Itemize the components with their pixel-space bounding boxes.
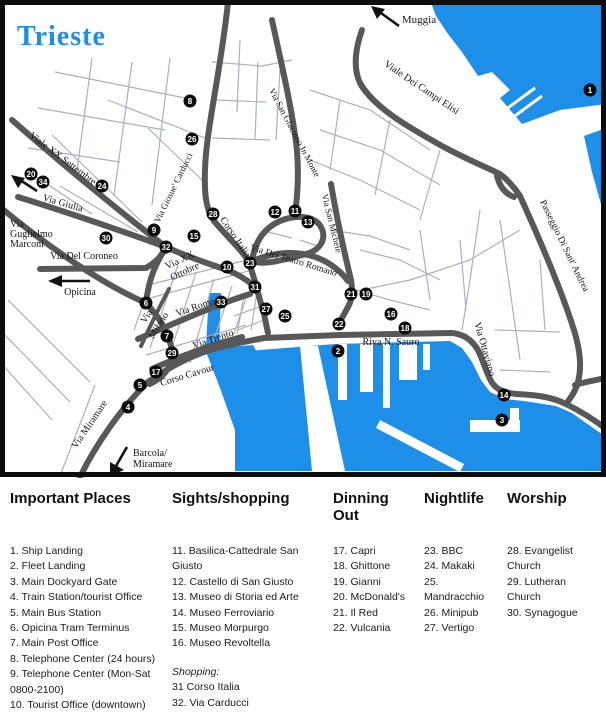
svg-text:14: 14 bbox=[500, 391, 509, 400]
street-label: Muggia bbox=[402, 14, 436, 26]
svg-text:19: 19 bbox=[362, 290, 371, 299]
svg-text:12: 12 bbox=[271, 208, 280, 217]
svg-text:26: 26 bbox=[188, 135, 197, 144]
svg-text:23: 23 bbox=[246, 259, 255, 268]
legend-column-sights-shopping: Sights/shopping 11. Basilica-Cattedrale … bbox=[172, 478, 326, 712]
legend-column-items: 17. Capri18. Ghittone19. Gianni20. McDon… bbox=[333, 544, 417, 636]
street-label: Marconi bbox=[10, 239, 44, 250]
street-label: Corso Italia bbox=[217, 215, 253, 261]
map-marker-28: 28 bbox=[207, 208, 220, 221]
map-marker-10: 10 bbox=[221, 261, 234, 274]
legend-item: 29. Lutheran Church bbox=[507, 575, 591, 606]
legend-item: 22. Vulcania bbox=[333, 621, 417, 636]
legend-item: 28. Evangelist Church bbox=[507, 544, 591, 575]
trieste-map: MuggiaViale XX SettembreVia GiuliaViaGug… bbox=[0, 0, 606, 478]
map-marker-4: 4 bbox=[122, 401, 135, 414]
street-label: Via Del Coroneo bbox=[50, 251, 118, 262]
legend-column-items: 28. Evangelist Church29. Lutheran Church… bbox=[507, 544, 591, 621]
legend-column-dining-out: Dinning Out 17. Capri18. Ghittone19. Gia… bbox=[333, 478, 417, 712]
legend-item: 10. Tourist Office (downtown) bbox=[10, 698, 174, 712]
svg-text:30: 30 bbox=[102, 234, 111, 243]
map-marker-31: 31 bbox=[249, 281, 262, 294]
svg-text:3: 3 bbox=[500, 416, 505, 425]
map-marker-3: 3 bbox=[496, 414, 509, 427]
map-marker-20: 20 bbox=[25, 168, 38, 181]
legend-column-items: 1. Ship Landing2. Fleet Landing3. Main D… bbox=[10, 544, 174, 712]
muggia-arrow bbox=[381, 13, 399, 26]
legend-item: 27. Vertigo bbox=[424, 621, 498, 636]
legend-column-items: 23. BBC24. Makaki25. Mandracchio26. Mini… bbox=[424, 544, 498, 636]
map-marker-8: 8 bbox=[184, 95, 197, 108]
legend-item: 2. Fleet Landing bbox=[10, 559, 174, 574]
svg-text:10: 10 bbox=[223, 263, 232, 272]
street-label: Via Miramare bbox=[70, 398, 111, 451]
legend-column-worship: Worship 28. Evangelist Church29. Luthera… bbox=[507, 478, 591, 712]
svg-text:9: 9 bbox=[152, 226, 157, 235]
map-marker-1: 1 bbox=[584, 84, 597, 97]
street-label: Viale Dei Campi Elisi bbox=[382, 59, 461, 117]
legend-item: 16. Museo Revoltella bbox=[172, 636, 326, 651]
legend: Important Places 1. Ship Landing2. Fleet… bbox=[0, 478, 606, 712]
svg-text:1: 1 bbox=[588, 86, 593, 95]
legend-column-title: Sights/shopping bbox=[172, 490, 326, 507]
svg-text:21: 21 bbox=[347, 290, 356, 299]
map-marker-27: 27 bbox=[260, 303, 273, 316]
legend-column-title: Nightlife bbox=[424, 490, 498, 507]
svg-text:28: 28 bbox=[209, 210, 218, 219]
map-canvas: MuggiaViale XX SettembreVia GiuliaViaGug… bbox=[0, 0, 606, 478]
street-label: Riva N. Sauro bbox=[363, 337, 420, 348]
svg-text:7: 7 bbox=[165, 332, 170, 341]
trieste-map-page: MuggiaViale XX SettembreVia GiuliaViaGug… bbox=[0, 0, 606, 712]
svg-text:15: 15 bbox=[190, 232, 199, 241]
map-marker-23: 23 bbox=[244, 257, 257, 270]
svg-text:17: 17 bbox=[152, 368, 161, 377]
map-marker-7: 7 bbox=[161, 330, 174, 343]
legend-item: 24. Makaki bbox=[424, 559, 498, 574]
svg-text:11: 11 bbox=[291, 207, 300, 216]
map-marker-24: 24 bbox=[96, 180, 109, 193]
legend-item: 21. Il Red bbox=[333, 606, 417, 621]
street-label: Via San Giacomo In Monte bbox=[267, 87, 322, 179]
legend-item: 18. Ghittone bbox=[333, 559, 417, 574]
map-marker-16: 16 bbox=[385, 308, 398, 321]
svg-text:6: 6 bbox=[144, 299, 149, 308]
map-title: Trieste bbox=[17, 21, 106, 52]
svg-text:24: 24 bbox=[98, 182, 107, 191]
svg-text:22: 22 bbox=[335, 320, 344, 329]
street-label: Barcola/ bbox=[133, 448, 167, 459]
legend-item: 31 Corso Italia bbox=[172, 680, 326, 695]
map-marker-9: 9 bbox=[148, 224, 161, 237]
map-marker-34: 34 bbox=[37, 176, 50, 189]
legend-item: 26. Minipub bbox=[424, 606, 498, 621]
svg-text:27: 27 bbox=[262, 305, 271, 314]
map-marker-29: 29 bbox=[166, 347, 179, 360]
svg-text:4: 4 bbox=[126, 403, 131, 412]
map-marker-18: 18 bbox=[399, 322, 412, 335]
svg-text:13: 13 bbox=[304, 218, 313, 227]
map-marker-21: 21 bbox=[345, 288, 358, 301]
legend-item: 5. Main Bus Station bbox=[10, 606, 174, 621]
street-label: Via Giosue' Carducci bbox=[152, 151, 195, 225]
legend-item: 17. Capri bbox=[333, 544, 417, 559]
map-marker-30: 30 bbox=[100, 232, 113, 245]
svg-text:20: 20 bbox=[27, 170, 36, 179]
map-marker-13: 13 bbox=[302, 216, 315, 229]
legend-item: 7. Main Post Office bbox=[10, 636, 174, 651]
map-marker-2: 2 bbox=[332, 345, 345, 358]
legend-item: 20. McDonald's bbox=[333, 590, 417, 605]
legend-item: 3. Main Dockyard Gate bbox=[10, 575, 174, 590]
legend-item: 25. Mandracchio bbox=[424, 575, 498, 606]
legend-item: 23. BBC bbox=[424, 544, 498, 559]
map-marker-6: 6 bbox=[140, 297, 153, 310]
legend-item: Shopping: bbox=[172, 665, 326, 680]
legend-item: 32. Via Carducci bbox=[172, 696, 326, 711]
map-marker-26: 26 bbox=[186, 133, 199, 146]
svg-text:18: 18 bbox=[401, 324, 410, 333]
map-marker-19: 19 bbox=[360, 288, 373, 301]
legend-column-nightlife: Nightlife 23. BBC24. Makaki25. Mandracch… bbox=[424, 478, 498, 712]
svg-text:31: 31 bbox=[251, 283, 260, 292]
svg-text:29: 29 bbox=[168, 349, 177, 358]
map-marker-17: 17 bbox=[150, 366, 163, 379]
svg-text:5: 5 bbox=[138, 381, 143, 390]
map-marker-33: 33 bbox=[215, 296, 228, 309]
legend-item: 14. Museo Ferroviario bbox=[172, 606, 326, 621]
svg-text:34: 34 bbox=[39, 178, 48, 187]
map-marker-12: 12 bbox=[269, 206, 282, 219]
map-marker-25: 25 bbox=[279, 310, 292, 323]
legend-item: 9. Telephone Center (Mon-Sat 0800-2100) bbox=[10, 667, 174, 698]
legend-item: 15. Museo Morpurgo bbox=[172, 621, 326, 636]
legend-column-important-places: Important Places 1. Ship Landing2. Fleet… bbox=[10, 478, 174, 712]
svg-text:16: 16 bbox=[387, 310, 396, 319]
legend-item: 12. Castello di San Giusto bbox=[172, 575, 326, 590]
legend-column-title: Important Places bbox=[10, 490, 174, 507]
barcola-arrow bbox=[116, 447, 127, 466]
svg-text:33: 33 bbox=[217, 298, 226, 307]
map-marker-22: 22 bbox=[333, 318, 346, 331]
northwest-arrow bbox=[20, 180, 37, 191]
svg-text:25: 25 bbox=[281, 312, 290, 321]
legend-item: 4. Train Station/tourist Office bbox=[10, 590, 174, 605]
map-marker-15: 15 bbox=[188, 230, 201, 243]
street-label: Opicina bbox=[64, 287, 96, 298]
legend-item: 19. Gianni bbox=[333, 575, 417, 590]
legend-item: 30. Synagogue bbox=[507, 606, 591, 621]
street-label: Miramare bbox=[133, 459, 173, 470]
map-marker-11: 11 bbox=[289, 205, 302, 218]
legend-item: 6. Opicina Tram Terminus bbox=[10, 621, 174, 636]
map-marker-5: 5 bbox=[134, 379, 147, 392]
legend-column-title: Worship bbox=[507, 490, 591, 507]
svg-text:8: 8 bbox=[188, 97, 193, 106]
svg-text:2: 2 bbox=[336, 347, 341, 356]
map-marker-14: 14 bbox=[498, 389, 511, 402]
legend-column-title: Dinning Out bbox=[333, 490, 417, 524]
legend-item: 13. Museo di Storia ed Arte bbox=[172, 590, 326, 605]
svg-text:32: 32 bbox=[162, 243, 171, 252]
legend-column-items: 11. Basilica-Cattedrale San Giusto12. Ca… bbox=[172, 544, 326, 712]
legend-item: 1. Ship Landing bbox=[10, 544, 174, 559]
legend-item: 11. Basilica-Cattedrale San Giusto bbox=[172, 544, 326, 575]
legend-item: 8. Telephone Center (24 hours) bbox=[10, 652, 174, 667]
map-marker-32: 32 bbox=[160, 241, 173, 254]
